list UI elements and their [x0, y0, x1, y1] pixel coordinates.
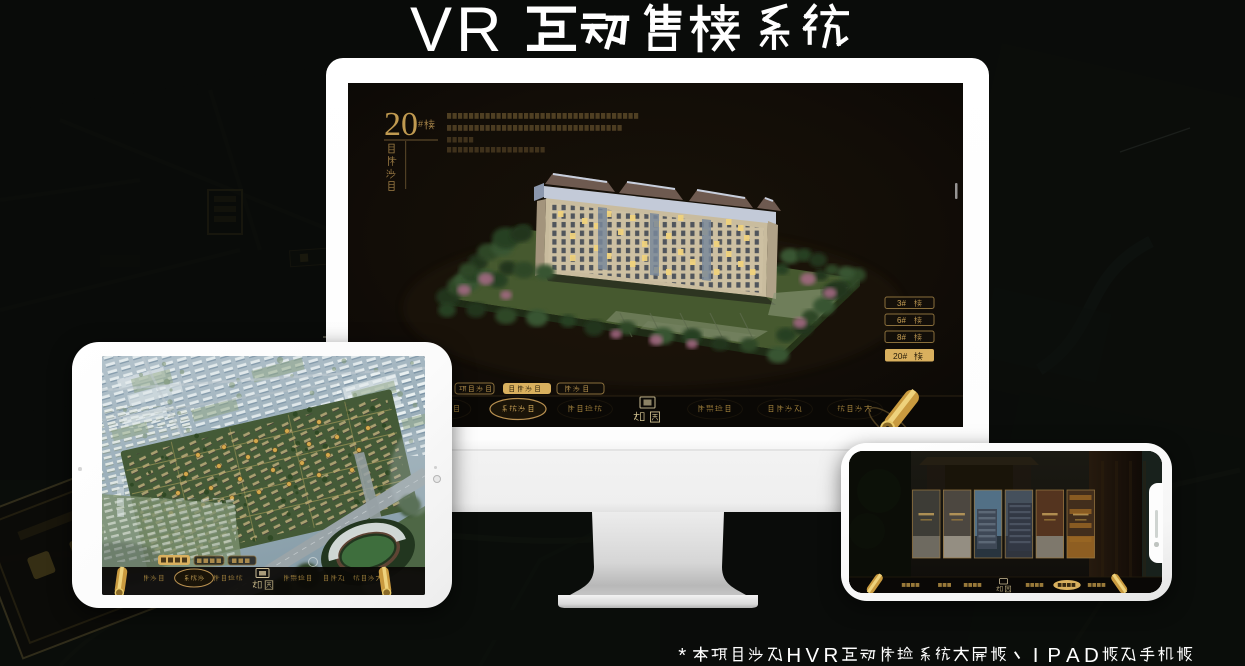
svg-text:VR: VR	[410, 0, 506, 62]
svg-text:20: 20	[384, 106, 418, 143]
svg-text:A: A	[1066, 644, 1080, 666]
svg-text:3#: 3#	[897, 299, 906, 308]
svg-text:*: *	[678, 644, 686, 666]
svg-text:P: P	[1047, 644, 1061, 666]
svg-text:6#: 6#	[897, 316, 906, 325]
svg-text:I: I	[1033, 644, 1039, 666]
svg-text:8#: 8#	[897, 333, 906, 342]
svg-text:R: R	[823, 644, 838, 666]
svg-text:#: #	[418, 119, 423, 129]
svg-text:D: D	[1084, 644, 1099, 666]
svg-text:20#: 20#	[893, 351, 907, 361]
svg-text:H: H	[786, 644, 801, 666]
svg-text:V: V	[805, 644, 819, 666]
